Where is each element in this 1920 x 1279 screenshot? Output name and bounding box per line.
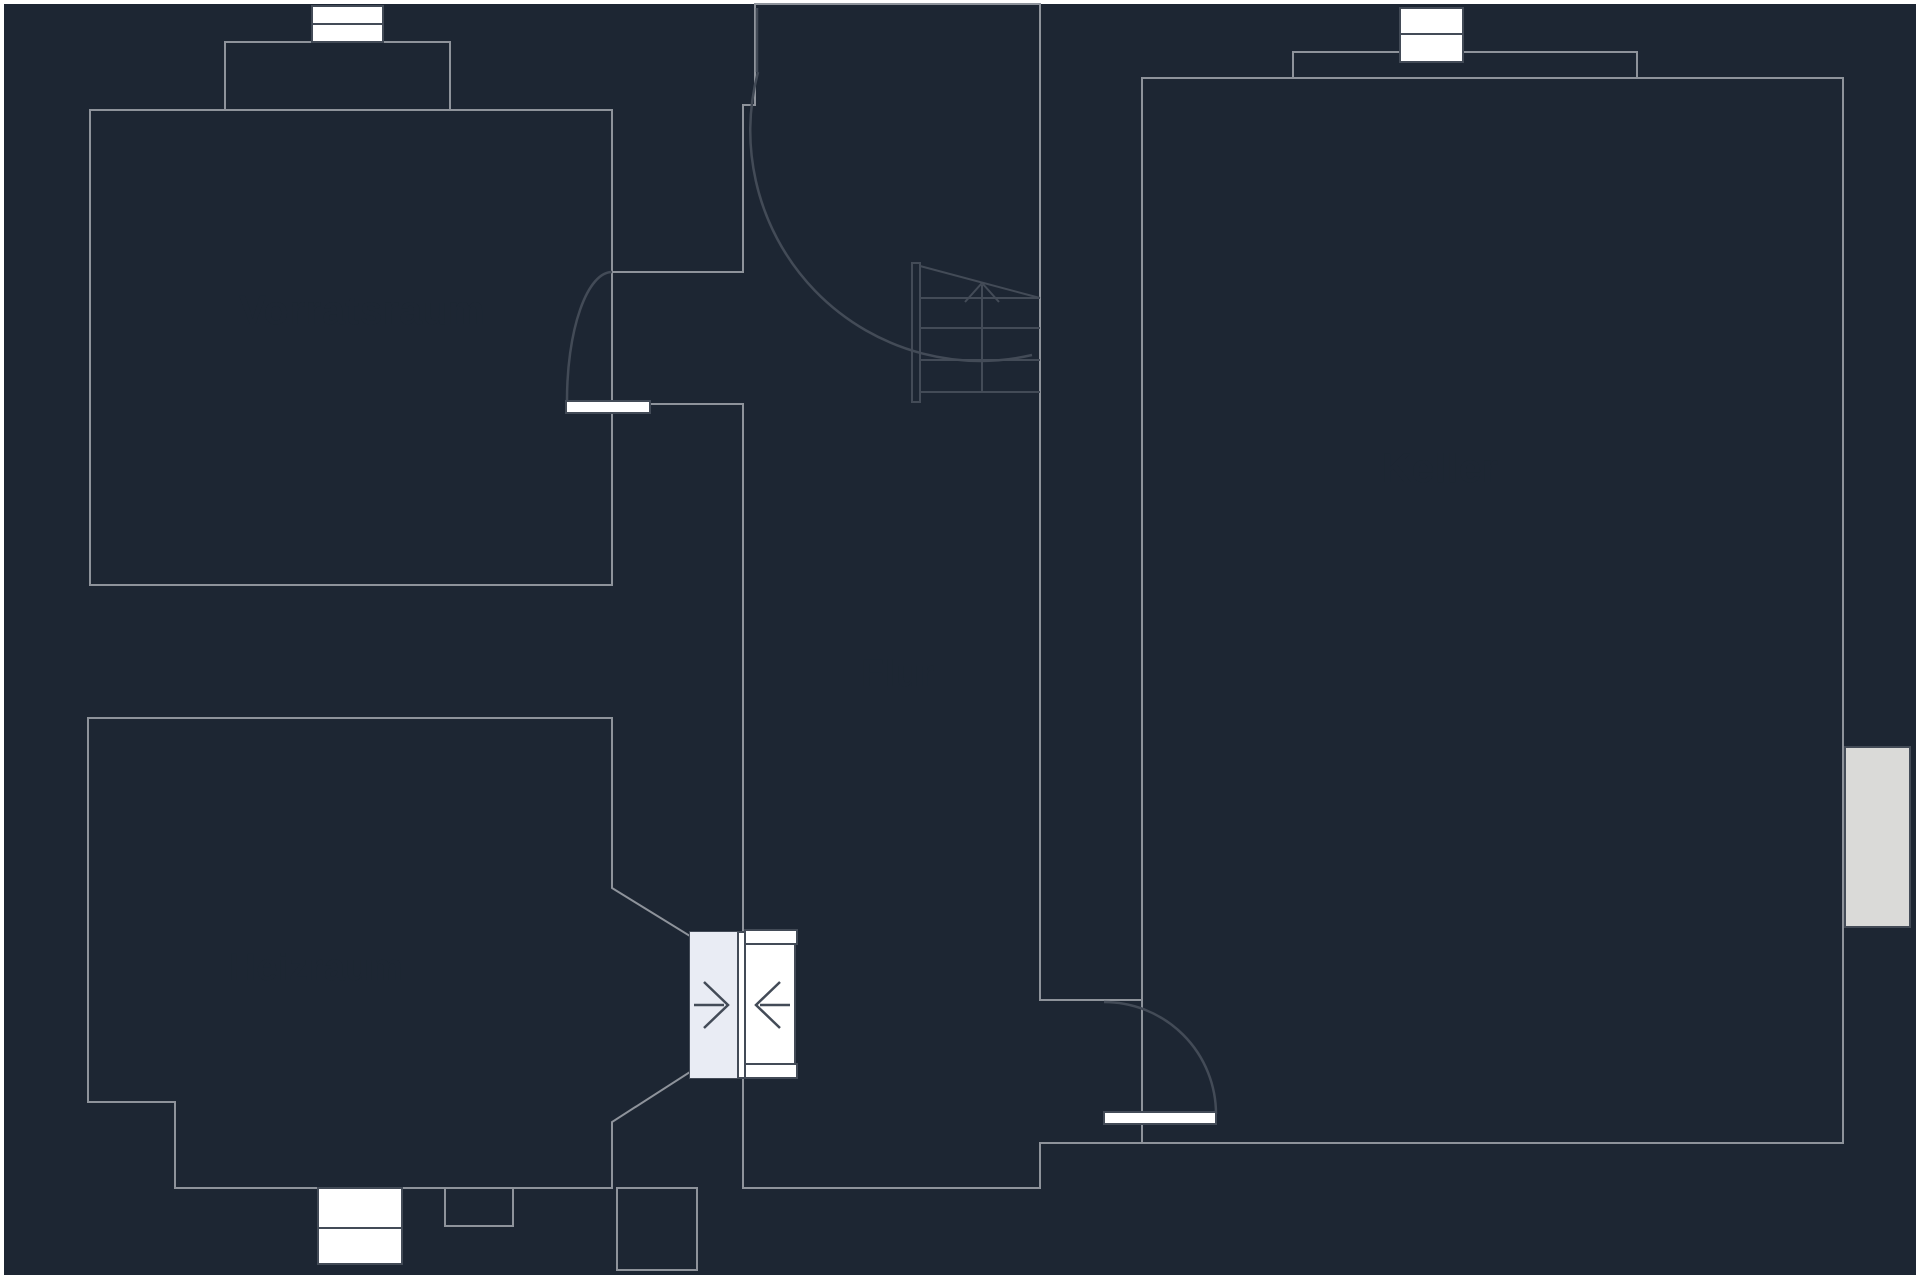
door-vorratsraum-leaf (566, 401, 650, 413)
window-bottom-left-glass (318, 1188, 402, 1264)
label-keller: Keller (1382, 445, 1499, 491)
window-bottom-left (318, 1188, 402, 1264)
floorplan-page: Vorratsraum Flur Heizraum Keller (0, 0, 1920, 1279)
floorplan-canvas: Vorratsraum Flur Heizraum Keller (0, 0, 1920, 1279)
double-door-box (690, 930, 797, 1078)
label-vorratsraum: Vorratsraum (239, 287, 485, 333)
door-keller-leaf (1104, 1112, 1216, 1124)
window-right-wall (1845, 747, 1910, 927)
double-door-cap-bottom (745, 1064, 797, 1078)
label-flur: Flur (861, 653, 935, 695)
wall-mass (4, 4, 1916, 1275)
window-top-right (1400, 8, 1463, 62)
window-top-left (312, 6, 383, 42)
label-heizraum: Heizraum (228, 947, 403, 989)
double-door-cap-top (745, 930, 797, 944)
